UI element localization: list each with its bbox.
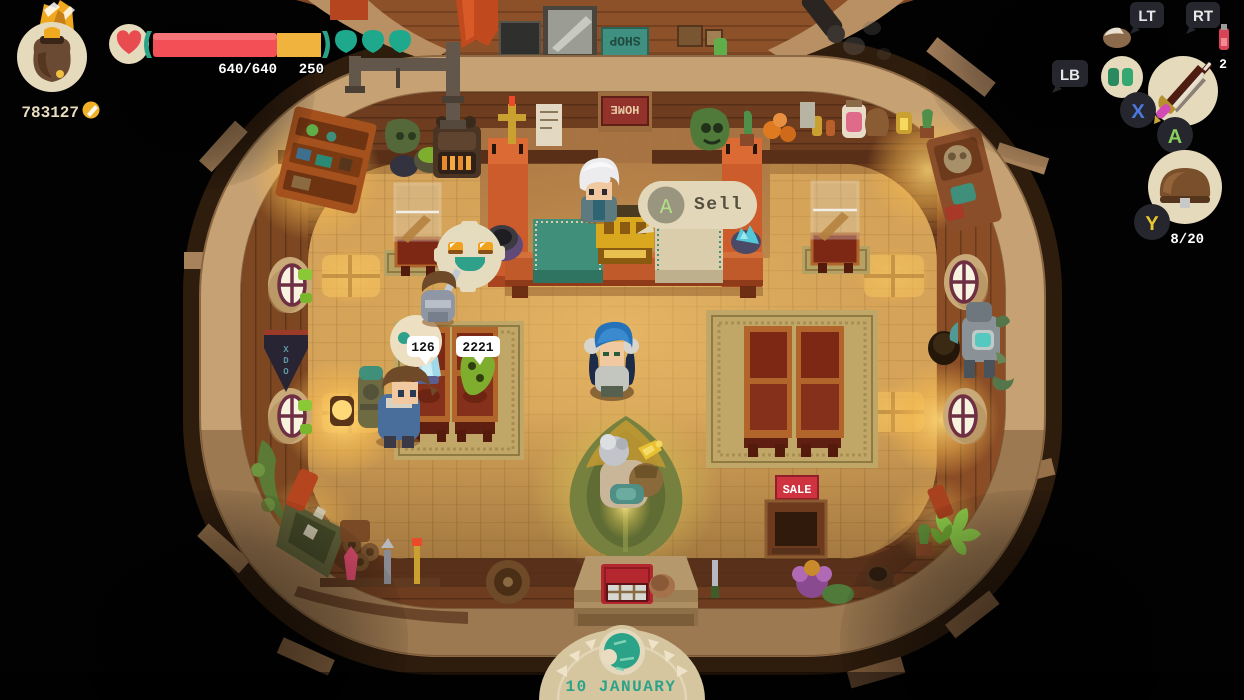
svg-text:250: 250: [299, 62, 324, 78]
svg-text:Sell: Sell: [694, 195, 743, 215]
svg-text:HOME: HOME: [611, 102, 640, 116]
svg-text:640/640: 640/640: [218, 62, 277, 78]
svg-text:X: X: [1131, 101, 1145, 123]
svg-text:RT: RT: [1193, 8, 1213, 25]
svg-text:126: 126: [411, 340, 435, 355]
svg-text:8/20: 8/20: [1170, 232, 1204, 248]
svg-text:O: O: [283, 367, 289, 377]
svg-text:X: X: [283, 345, 289, 355]
svg-text:Y: Y: [1145, 213, 1159, 235]
svg-text:A: A: [660, 197, 673, 220]
svg-text:2221: 2221: [462, 340, 493, 355]
svg-text:A: A: [1168, 126, 1182, 148]
svg-text:SALE: SALE: [783, 483, 812, 497]
svg-text:D: D: [283, 356, 289, 366]
svg-text:10 JANUARY: 10 JANUARY: [565, 678, 676, 696]
svg-text:LT: LT: [1138, 8, 1155, 25]
svg-text:2: 2: [1219, 57, 1227, 72]
svg-text:LB: LB: [1060, 67, 1080, 84]
svg-text:783127: 783127: [21, 104, 79, 122]
svg-text:SHOP: SHOP: [609, 33, 640, 48]
